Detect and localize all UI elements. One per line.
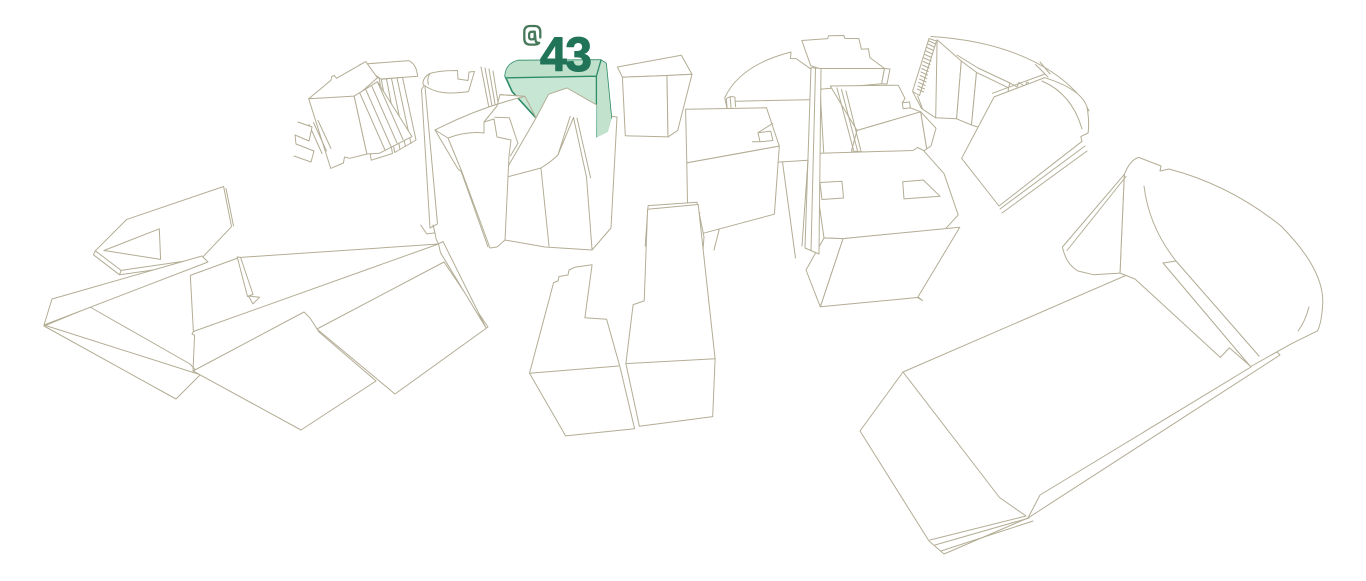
svg-text:43: 43 <box>540 29 590 82</box>
